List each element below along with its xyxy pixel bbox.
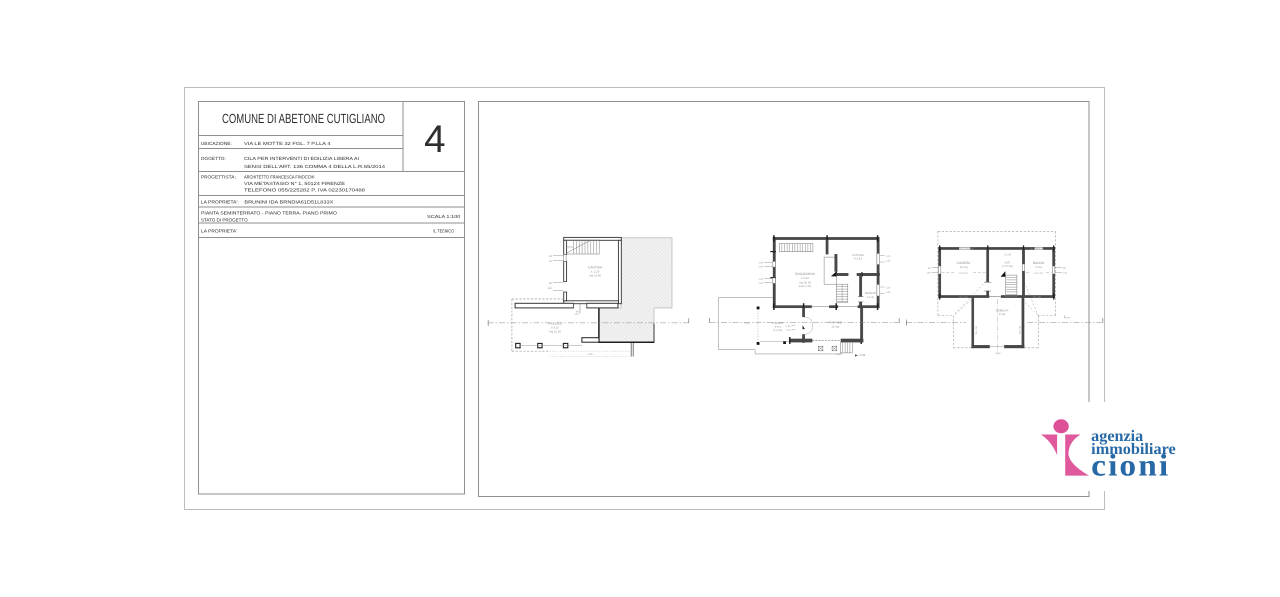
svg-text:h 2.42: h 2.42 (801, 276, 809, 280)
svg-text:210: 210 (548, 287, 553, 290)
svg-text:4.20: 4.20 (996, 352, 1001, 355)
svg-text:cioni: cioni (1091, 448, 1170, 483)
svg-text:h 2.05: h 2.05 (1004, 253, 1012, 256)
svg-text:210: 210 (575, 313, 580, 316)
svg-text:+0.55: +0.55 (859, 354, 866, 357)
svg-text:0.50: 0.50 (836, 353, 841, 356)
svg-text:2.10: 2.10 (786, 329, 791, 332)
svg-text:(4.70 mq): (4.70 mq) (1002, 265, 1013, 268)
svg-text:fin. 0.90x1.30: fin. 0.90x1.30 (1030, 247, 1044, 250)
svg-text:h=1.70: h=1.70 (1034, 272, 1043, 275)
svg-text:CILA PER INTERVENTI DI EDILIZI: CILA PER INTERVENTI DI EDILIZIA LIBERA A… (244, 156, 359, 161)
svg-text:(max 2.42): (max 2.42) (799, 285, 812, 288)
svg-text:mq 21.10: mq 21.10 (549, 329, 561, 333)
svg-text:STATO DI PROGETTO: STATO DI PROGETTO (201, 218, 248, 223)
svg-text:1.20: 1.20 (758, 262, 763, 265)
svg-text:fin. 0.90: fin. 0.90 (975, 325, 978, 334)
svg-text:VIA METASTASIO N° 1, 50124 FIR: VIA METASTASIO N° 1, 50124 FIRENZE (244, 181, 345, 186)
svg-text:1.20: 1.20 (886, 287, 891, 290)
svg-text:fin. 1.10: fin. 1.10 (1033, 296, 1042, 299)
svg-text:COMUNE DI ABETONE CUTIGLIANO: COMUNE DI ABETONE CUTIGLIANO (222, 111, 385, 126)
svg-text:1.20: 1.20 (758, 278, 763, 281)
svg-text:mq 35.10: mq 35.10 (799, 281, 811, 285)
svg-text:LA PROPRIETA':: LA PROPRIETA': (201, 200, 239, 205)
svg-text:UBICAZIONE:: UBICAZIONE: (201, 141, 232, 146)
svg-text:DIS.: DIS. (1005, 260, 1011, 264)
svg-text:h 2.42: h 2.42 (854, 257, 862, 261)
svg-text:1.40: 1.40 (886, 291, 891, 294)
svg-text:PROGETTISTA:: PROGETTISTA: (201, 175, 236, 180)
svg-text:120: 120 (927, 272, 932, 275)
svg-text:PIANTA SEMINTERRATO - PIANO TE: PIANTA SEMINTERRATO - PIANO TERRA- PIANO… (201, 211, 337, 216)
svg-text:VIA LE MOTTE 32 FGL. 7 P.LLA 4: VIA LE MOTTE 32 FGL. 7 P.LLA 4 (244, 141, 331, 146)
svg-text:BRUNINI IDA BRNDIA61D51L833X: BRUNINI IDA BRNDIA61D51L833X (244, 200, 333, 205)
svg-text:1.00: 1.00 (758, 282, 763, 285)
svg-text:OGGETTO:: OGGETTO: (201, 156, 226, 161)
svg-text:5 mq: 5 mq (1035, 265, 1042, 269)
svg-text:fin. 0.90: fin. 0.90 (1018, 326, 1021, 335)
svg-text:SENSI DELL'ART. 136 COMMA 4 DE: SENSI DELL'ART. 136 COMMA 4 DELLA L.R.65… (244, 164, 386, 169)
svg-text:1.00: 1.00 (758, 266, 763, 269)
svg-text:12 mq: 12 mq (960, 265, 968, 269)
svg-text:h 2.42: h 2.42 (867, 296, 875, 299)
svg-text:9 mq: 9 mq (999, 312, 1006, 316)
svg-text:IL TECNICO: IL TECNICO (433, 228, 454, 233)
svg-text:1.40: 1.40 (886, 260, 891, 263)
svg-text:9 mq: 9 mq (775, 326, 781, 329)
svg-text:h=1.70: h=1.70 (959, 272, 968, 275)
svg-text:LA PROPRIETA': LA PROPRIETA' (201, 228, 237, 233)
svg-text:(h 2.30): (h 2.30) (773, 329, 782, 332)
svg-text:TELEFONO 055/225282 P. IVA 022: TELEFONO 055/225282 P. IVA 02230170488 (244, 188, 366, 193)
svg-text:SCALA 1:100: SCALA 1:100 (427, 214, 461, 219)
svg-text:120: 120 (1063, 272, 1068, 275)
svg-text:4: 4 (424, 118, 445, 161)
svg-text:fin. 1.10x1.30: fin. 1.10x1.30 (960, 247, 974, 250)
svg-text:ARCHITETTO FRANCESCA FINOCCHI: ARCHITETTO FRANCESCA FINOCCHI (244, 175, 315, 180)
svg-text:fin. 1.10: fin. 1.10 (960, 296, 969, 299)
svg-text:BAGNO: BAGNO (865, 291, 877, 295)
svg-text:12 mq: 12 mq (831, 324, 839, 328)
svg-text:6.45: 6.45 (587, 353, 593, 356)
svg-text:1.20: 1.20 (886, 255, 891, 258)
svg-text:1.60: 1.60 (786, 325, 791, 328)
svg-text:P.ZZALE: P.ZZALE (772, 321, 783, 325)
svg-text:mq 14.60: mq 14.60 (589, 274, 601, 278)
